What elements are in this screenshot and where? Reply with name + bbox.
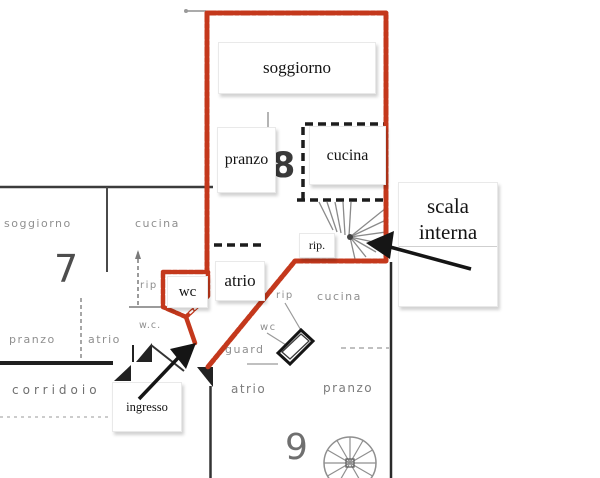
scala-interna-arrow xyxy=(366,231,471,269)
annotation-arrows xyxy=(0,0,600,478)
floor-plan: soggiorno cucina rip pranzo atrio w.c. c… xyxy=(0,0,600,478)
ingresso-arrow xyxy=(139,343,196,399)
